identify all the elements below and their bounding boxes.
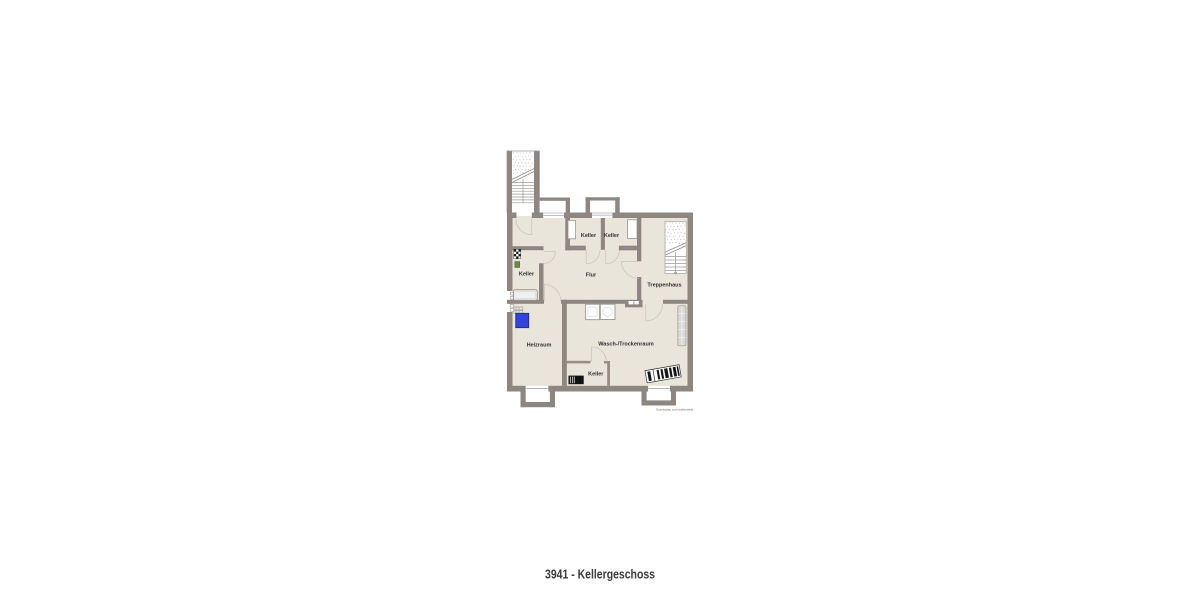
svg-text:Treppenhaus: Treppenhaus [647,283,681,289]
svg-text:Heizraum: Heizraum [527,343,552,349]
svg-text:Keller: Keller [604,233,620,239]
svg-text:Keller: Keller [588,372,604,378]
svg-text:Flur: Flur [586,273,597,279]
svg-text:Keller: Keller [581,233,597,239]
svg-text:3941 - Kellergeschoss: 3941 - Kellergeschoss [545,567,655,582]
svg-text:Exposeplan.com/maklerdetail: Exposeplan.com/maklerdetail [656,407,693,411]
svg-text:Wasch-/Trockenraum: Wasch-/Trockenraum [598,342,654,348]
svg-text:Keller: Keller [519,272,535,278]
